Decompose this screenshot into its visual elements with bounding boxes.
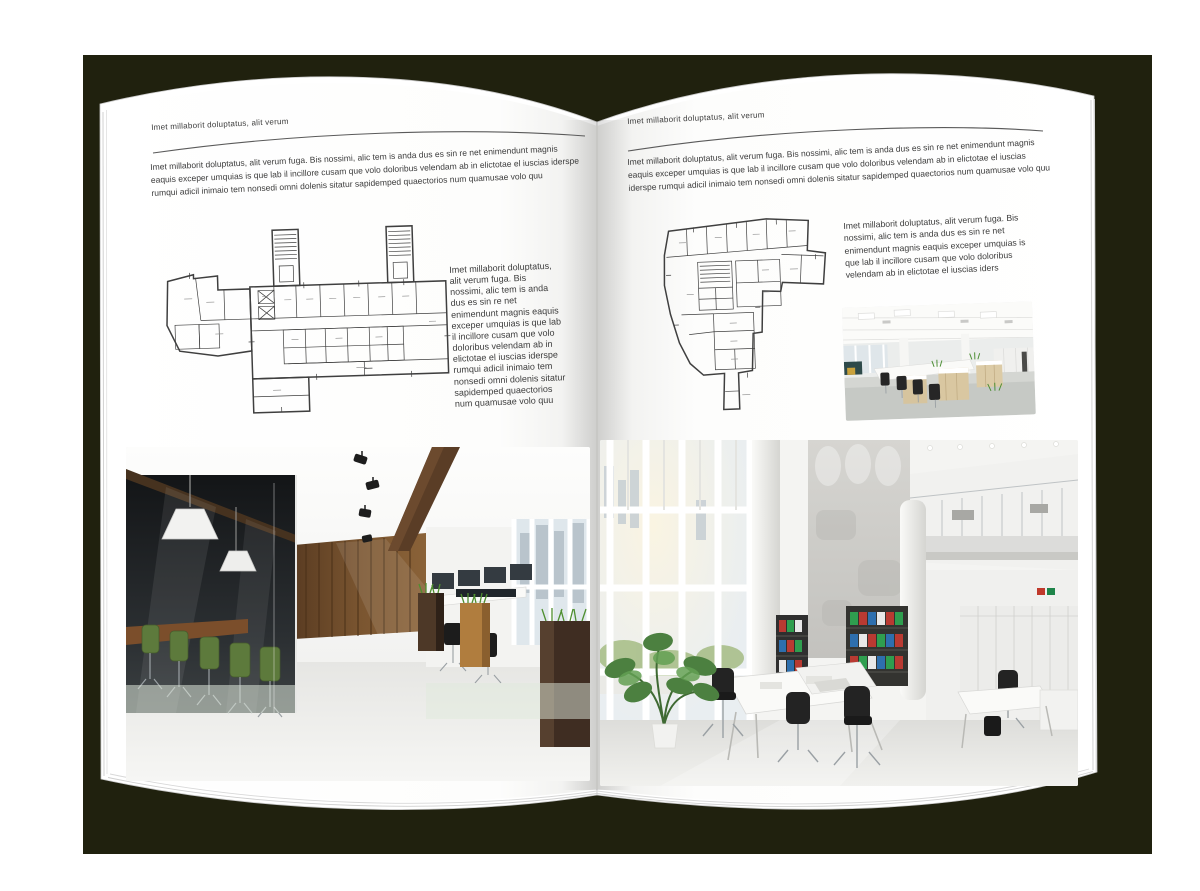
photo-office-wood-glass [126,447,590,781]
magazine-mockup-canvas: Imet millaborit doluptatus, alit verum I… [0,0,1200,891]
photo-office-wood-glass-art [126,447,590,781]
right-page-side-paragraph: Imet millaborit doluptatus, alit verum f… [843,211,1040,282]
floor-plan-right-page [648,209,849,418]
left-page-side-paragraph: Imet millaborit doluptatus, alit verum f… [449,260,567,410]
floor-plan-left-page [152,221,456,418]
photo-office-atrium-art [600,440,1078,786]
photo-office-small [842,301,1036,421]
stair-hatching [274,231,411,282]
photo-office-atrium [600,440,1078,786]
photo-office-small-art [842,301,1036,421]
